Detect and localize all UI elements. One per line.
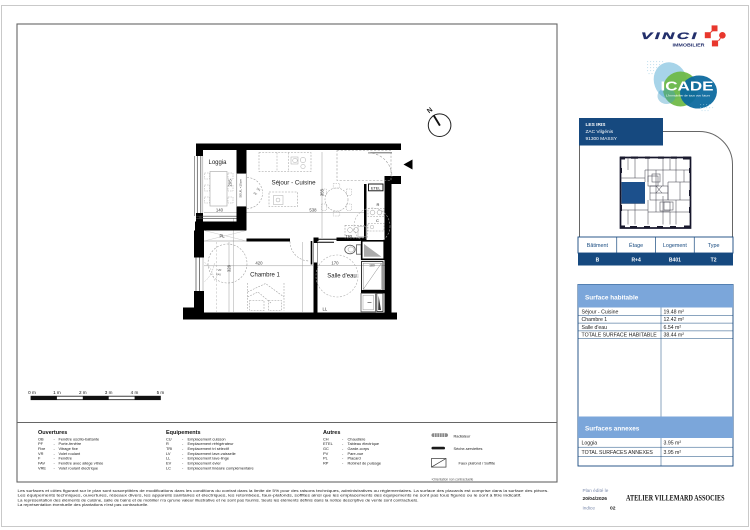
svg-text:Plan édité le: Plan édité le [583,488,609,493]
svg-text:B401: B401 [669,257,681,263]
svg-text:Salle d'eau: Salle d'eau [327,274,357,280]
svg-text:TRI: TRI [346,233,352,238]
svg-text:Séjour - Cuisine: Séjour - Cuisine [271,179,316,186]
svg-text:Surfaces annexes: Surfaces annexes [585,426,640,433]
svg-text:Surface habitable: Surface habitable [585,295,639,302]
svg-text:TOTALE SURFACE HABITABLE: TOTALE SURFACE HABITABLE [582,333,658,339]
svg-text:355: 355 [320,188,325,196]
svg-text:Chambre 1: Chambre 1 [250,272,280,278]
svg-text:PL: PL [219,234,225,239]
svg-text:Equipements: Equipements [166,430,201,436]
svg-text:19.48 m²: 19.48 m² [664,309,685,315]
svg-text:LC: LC [166,465,171,470]
svg-text:Séjour - Cuisine: Séjour - Cuisine [582,309,619,315]
svg-text:R+4: R+4 [631,257,641,263]
svg-text:3 m: 3 m [105,390,113,395]
svg-text:Type: Type [708,243,720,249]
svg-text:180: 180 [369,263,375,267]
svg-text:328: 328 [227,264,232,272]
svg-text:5 m: 5 m [157,390,165,395]
svg-text:Logement: Logement [663,243,687,249]
svg-text:420: 420 [255,261,263,266]
svg-text:Salle d'eau: Salle d'eau [582,325,608,331]
svg-text:2 m: 2 m [79,390,87,395]
svg-text:Loggia: Loggia [208,160,227,166]
svg-text:R: R [377,202,380,207]
svg-text:Étage: Étage [629,242,643,249]
svg-text:Bâtiment: Bâtiment [587,243,609,249]
svg-text:140: 140 [216,207,224,212]
svg-text:170: 170 [331,260,339,265]
svg-text:FAV: FAV [216,273,221,277]
svg-text:TOTAL SURFACES ANNEXES: TOTAL SURFACES ANNEXES [582,450,654,456]
svg-text:RP: RP [323,461,329,466]
svg-text:Robinet de puisage: Robinet de puisage [348,461,382,466]
svg-text:L'immobilier de tous vos futur: L'immobilier de tous vos futurs [666,93,711,97]
svg-text:Sèche-serviettes: Sèche-serviettes [454,446,483,451]
svg-text:B: B [596,257,600,263]
svg-text:3.95 m²: 3.95 m² [664,441,682,447]
svg-text:C: C [376,218,379,223]
svg-text:LES IRIS: LES IRIS [586,122,607,128]
svg-text:Faux plafond / Soffite: Faux plafond / Soffite [459,460,496,465]
svg-text:12.42 m²: 12.42 m² [664,317,685,323]
svg-text:38.44 m²: 38.44 m² [664,333,685,339]
svg-text:ATELIER VILLEMARD ASSOCIES: ATELIER VILLEMARD ASSOCIES [626,494,725,503]
svg-text:ICADE: ICADE [661,80,714,94]
svg-text:Autres: Autres [323,430,340,436]
svg-text:Chambre 1: Chambre 1 [582,317,608,323]
svg-text:02: 02 [610,505,616,511]
svg-text:3.95 m²: 3.95 m² [664,450,682,456]
svg-text:Ouvertures: Ouvertures [38,430,67,436]
svg-text:295: 295 [228,179,233,187]
svg-text:Loggia: Loggia [582,441,598,447]
svg-text:Radiateur: Radiateur [454,433,472,438]
svg-text:Indice: Indice [583,505,596,510]
svg-text:ETEL: ETEL [371,186,381,190]
svg-text:IMMOBILIER: IMMOBILIER [673,43,706,48]
svg-text:SEUIL <15cm: SEUIL <15cm [239,179,243,198]
svg-text:LL: LL [323,307,328,312]
svg-text:ZAC Vilgénis: ZAC Vilgénis [586,129,614,135]
svg-text:91300 MASSY: 91300 MASSY [586,136,618,142]
svg-text:538: 538 [309,208,317,213]
svg-text:4 m: 4 m [131,390,139,395]
svg-text:1 m: 1 m [53,390,61,395]
svg-text:Volet roulant électrique: Volet roulant électrique [59,465,99,470]
svg-text:T2: T2 [711,257,717,263]
svg-text:VRE: VRE [38,465,46,470]
svg-text:6.54 m²: 6.54 m² [664,325,682,331]
svg-text:0 m: 0 m [28,390,36,395]
svg-text:VR: VR [218,268,222,272]
svg-text:20/04/2026: 20/04/2026 [583,496,608,502]
svg-text:¹Orientation non contractuelle: ¹Orientation non contractuelle [432,477,474,481]
svg-text:VINCI: VINCI [641,30,699,41]
svg-text:Emplacement linéaire complémen: Emplacement linéaire complémentaire [188,465,254,470]
svg-text:La représentation éventuelle d: La représentation éventuelle des plantat… [18,502,149,507]
